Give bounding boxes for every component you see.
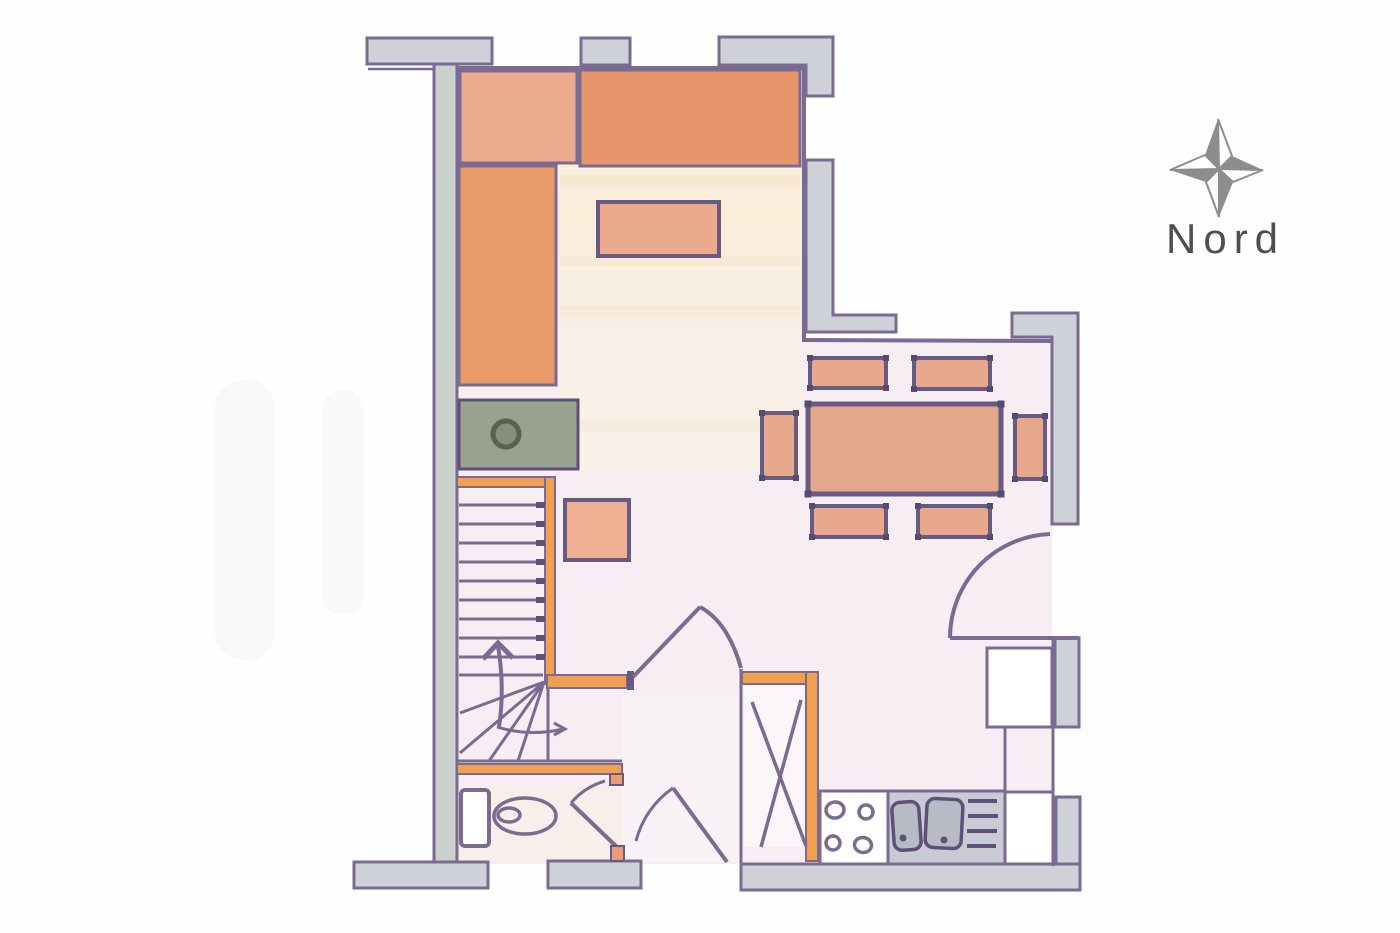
svg-text:Nord: Nord xyxy=(1166,215,1285,262)
